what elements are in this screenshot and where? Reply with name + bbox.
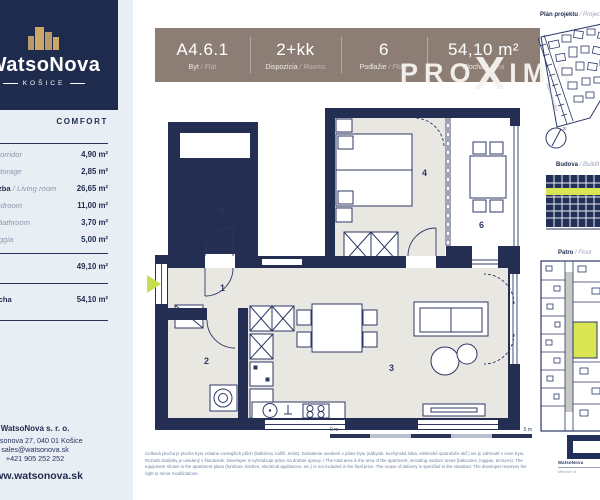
- table-row: Lodžia / Loggia 5,00 m²: [0, 232, 108, 249]
- window: [262, 259, 302, 265]
- coffee-table: [431, 347, 459, 375]
- tv-stand: [423, 404, 485, 416]
- company-logo: WatsoNova KOŠICE: [0, 0, 118, 110]
- dining-table: [312, 304, 362, 352]
- chair: [473, 200, 486, 212]
- chair: [363, 332, 377, 347]
- loggia-table: [470, 156, 506, 198]
- shaft: [180, 133, 250, 158]
- room-number-storage: 2: [204, 356, 209, 366]
- developer-logo-mark: [558, 434, 600, 460]
- highlighted-unit: [573, 322, 597, 358]
- floor-key-plan: [540, 258, 600, 434]
- balcony-glazing: [510, 274, 520, 364]
- tier-label: COMFORT: [56, 117, 108, 126]
- room-number-bedroom: 4: [422, 168, 427, 178]
- scale-start: 0 m: [330, 427, 338, 433]
- apartment-header-bar: A4.6.1 Byt / Flat 2+kk Dispozícia / Room…: [155, 28, 540, 82]
- floor-plan: 1 2 3 4 5 6: [140, 78, 540, 434]
- developer-name: WatsoNova: [558, 460, 583, 465]
- company-phone: +421 905 252 252: [0, 454, 133, 463]
- chair: [297, 332, 311, 347]
- scale-segments: [330, 434, 532, 438]
- nightstand: [336, 208, 352, 222]
- subtotal-row: 49,10 m²: [0, 259, 108, 276]
- building-elevation: [546, 171, 600, 235]
- total-row: Celková plocha 54,10 m²: [0, 292, 108, 309]
- header-cell-floor: 6 Podlažie / Floor: [341, 28, 427, 82]
- company-website: www.watsonova.sk: [0, 470, 133, 482]
- header-cell-flat: A4.6.1 Byt / Flat: [155, 28, 250, 82]
- sidebar: WatsoNova KOŠICE COMFORT Chodba / Corrid…: [0, 0, 133, 500]
- pillow: [338, 136, 353, 149]
- header-cell-rooms: 2+kk Dispozícia / Rooms: [250, 28, 341, 82]
- divider: [558, 467, 600, 468]
- divider: [0, 283, 108, 284]
- table-row: Komora / Storage 2,85 m²: [0, 164, 108, 181]
- room-number-loggia: 6: [479, 220, 484, 230]
- highlighted-floor: [546, 188, 600, 195]
- room-number-corridor: 1: [220, 283, 225, 293]
- project-plan-label: Plán projektu / Project plan: [540, 12, 600, 18]
- divider: [0, 320, 108, 321]
- pillow: [338, 191, 353, 204]
- chair: [490, 142, 503, 154]
- room-number-living: 3: [389, 363, 394, 373]
- company-name: WatsoNova s. r. o.: [0, 424, 133, 433]
- table-row: Kúpeľňa / Bathroom 3,70 m²: [0, 215, 108, 232]
- scale-end: 5 m: [524, 427, 532, 433]
- contact-block: WatsoNova s. r. o. Watsonova 27, 040 01 …: [0, 424, 133, 482]
- building-icon: [27, 24, 61, 50]
- compass-north: S: [563, 126, 566, 131]
- nightstand: [336, 119, 352, 132]
- table-row: Chodba / Corridor 4,90 m²: [0, 147, 108, 164]
- developer-logo-block: WatsoNova Member of: [558, 434, 600, 474]
- chair: [363, 310, 377, 325]
- divider: [0, 143, 108, 144]
- dash-left: [3, 83, 18, 84]
- fridge: [250, 362, 273, 386]
- chair: [473, 142, 486, 154]
- header-cell-area: 54,10 m² Plocha / Area: [427, 28, 540, 82]
- table-row: Obývacia izba / Living room 26,65 m²: [0, 181, 108, 198]
- dash-right: [70, 83, 85, 84]
- company-email: sales@watsonova.sk: [0, 445, 133, 454]
- scale-bar: 0 m 5 m: [330, 427, 532, 438]
- divider: [0, 253, 108, 254]
- corridor-strip: [565, 272, 573, 412]
- logo-name: WatsoNova: [0, 54, 100, 77]
- legal-disclaimer: Celková plocha je plocha bytu vrátane vo…: [145, 451, 531, 477]
- developer-member-label: Member of: [558, 470, 576, 474]
- room-number-bathroom: 5: [219, 206, 224, 216]
- side-table: [457, 344, 477, 364]
- building-label: Budova / Building: [556, 162, 600, 168]
- company-address: Watsonova 27, 040 01 Košice: [0, 436, 133, 445]
- location-panels: Plán projektu / Project plan: [532, 0, 600, 500]
- table-row: Spálňa / Bedroom 11,00 m²: [0, 198, 108, 215]
- floor-label: Patro / Floor: [558, 250, 592, 256]
- chair: [490, 200, 503, 212]
- chair: [297, 310, 311, 325]
- logo-city: KOŠICE: [3, 80, 86, 87]
- site-plan-map: Watsonova ulica S: [532, 20, 600, 158]
